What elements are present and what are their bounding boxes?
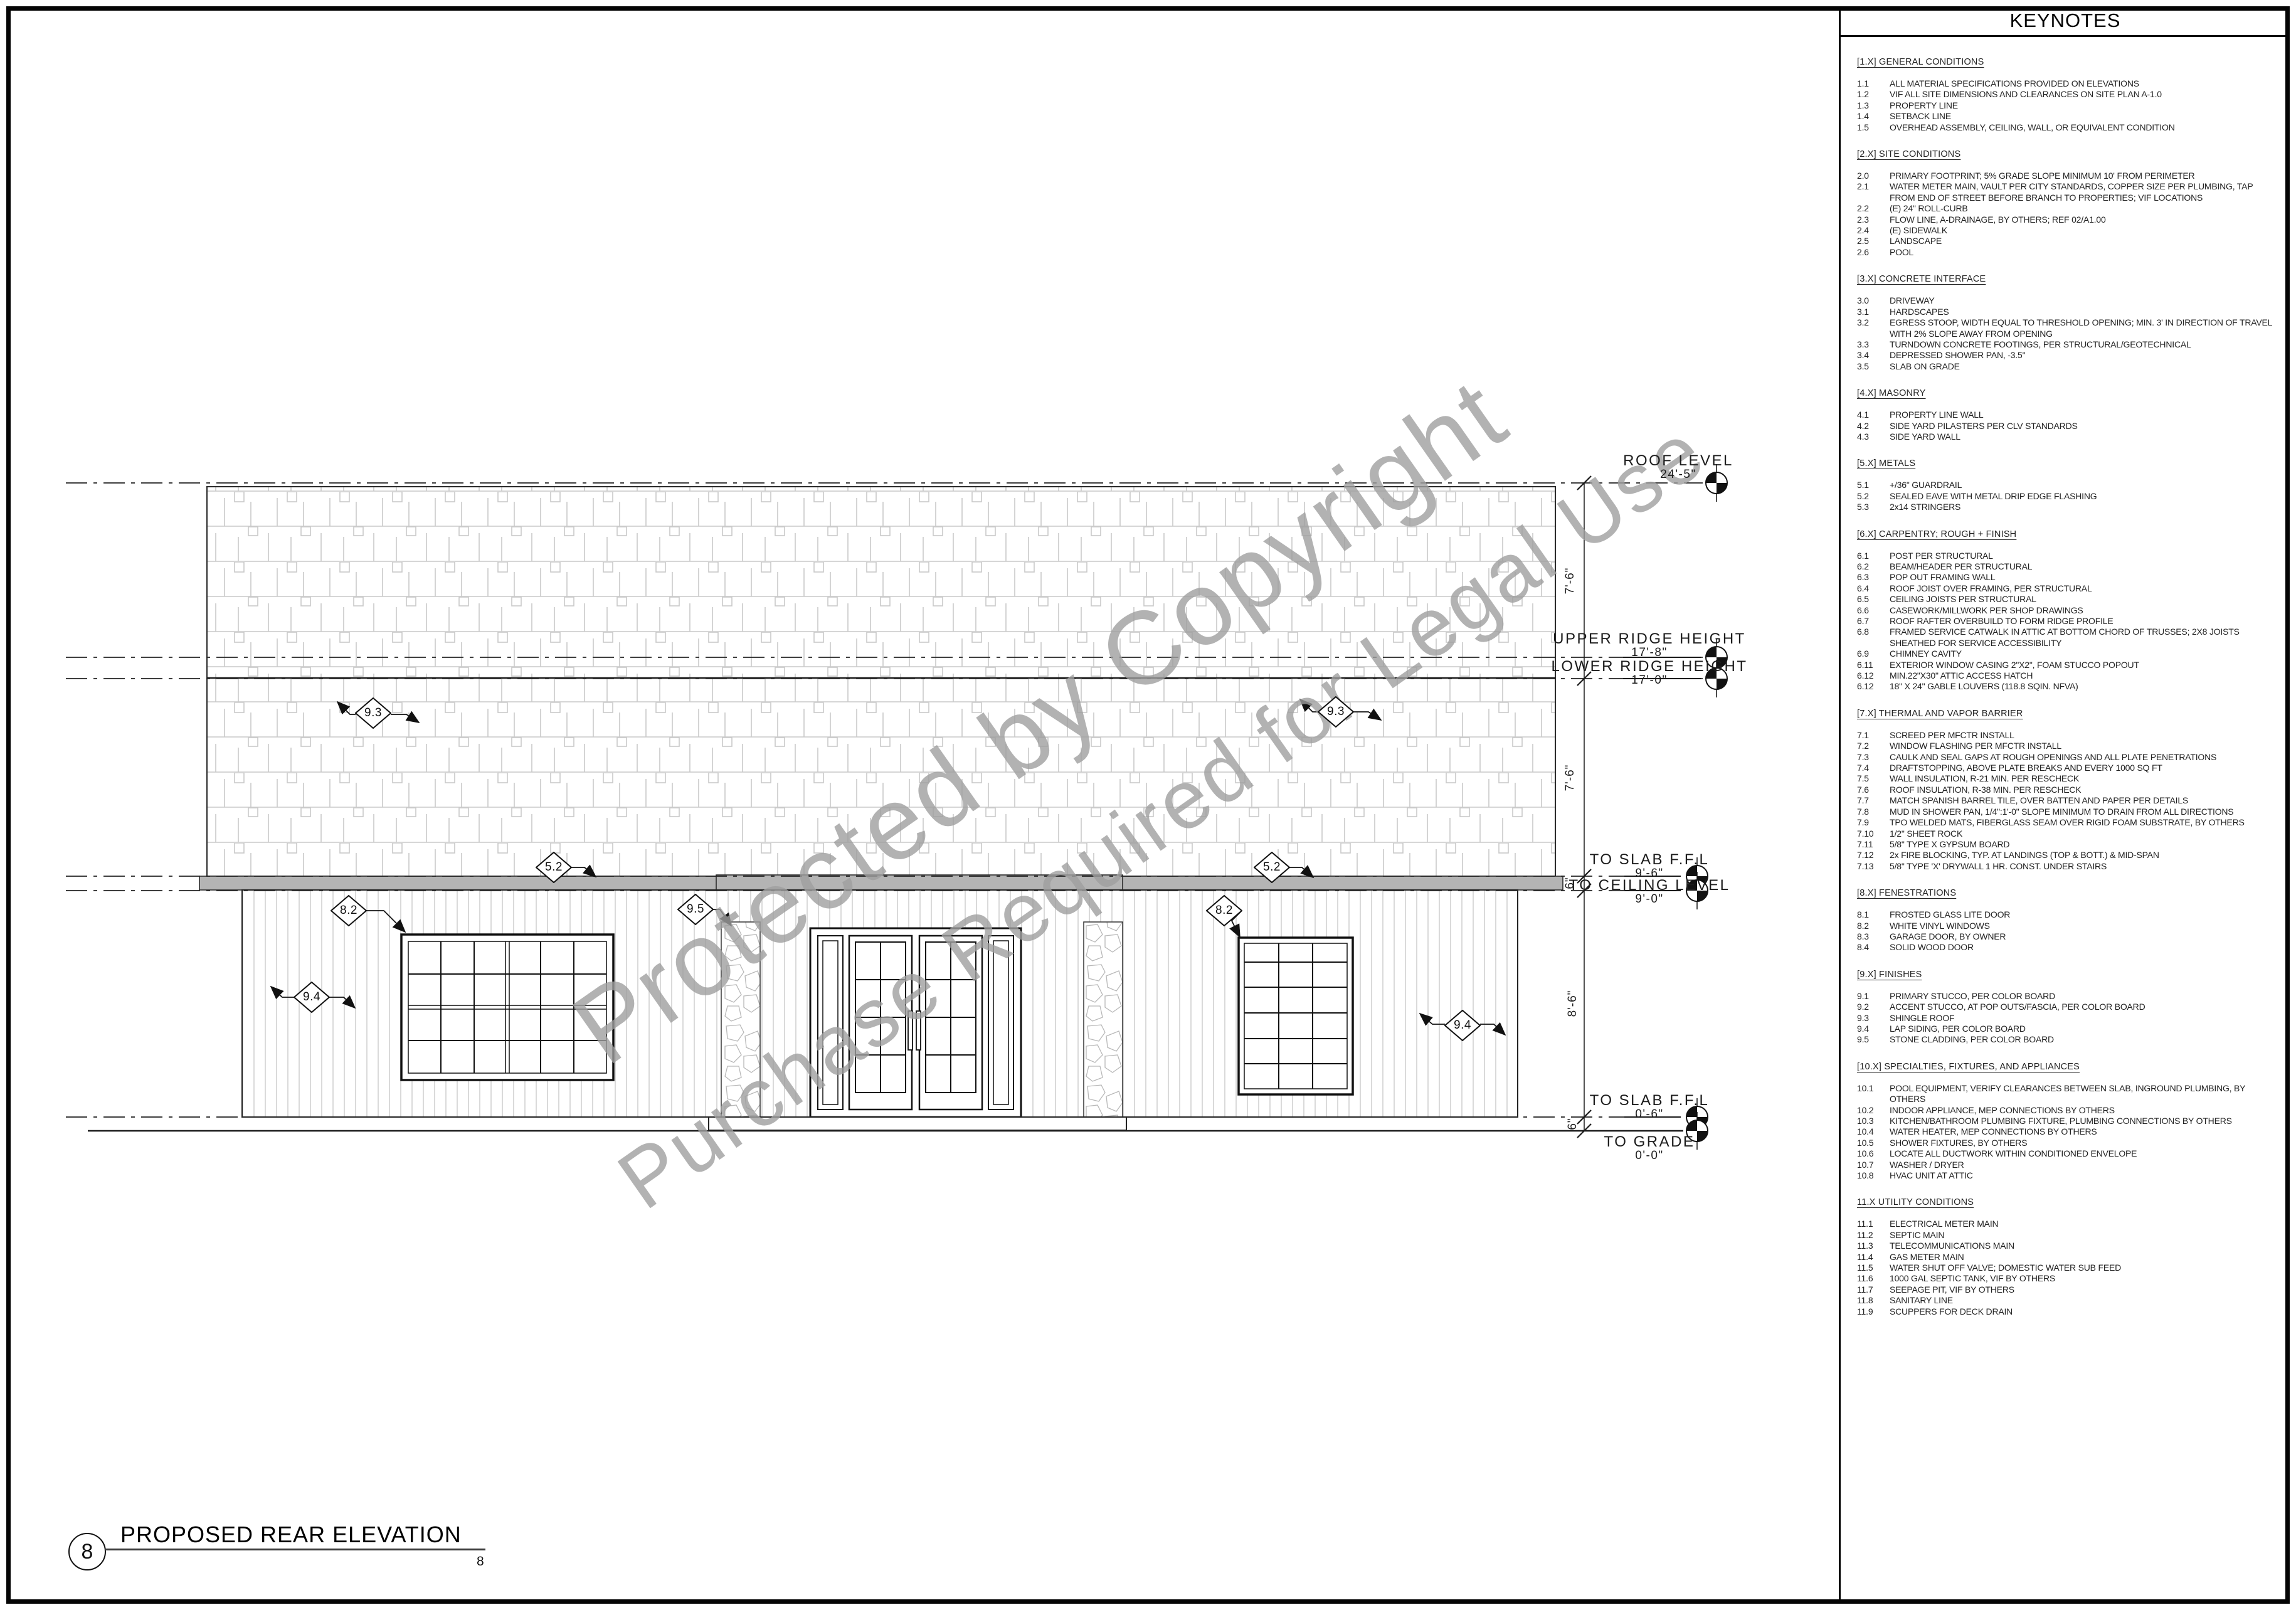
- keynote-text: SIDE YARD PILASTERS PER CLV STANDARDS: [1890, 421, 2280, 432]
- keynote-text: 1/2" SHEET ROCK: [1890, 829, 2280, 839]
- keynote-number: 2.6: [1857, 247, 1890, 258]
- keynote-item: 5.2SEALED EAVE WITH METAL DRIP EDGE FLAS…: [1857, 491, 2280, 502]
- keynote-text: SEEPAGE PIT, VIF BY OTHERS: [1890, 1284, 2280, 1295]
- keynote-number: 3.5: [1857, 361, 1890, 372]
- keynote-text: POOL EQUIPMENT, VERIFY CLEARANCES BETWEE…: [1890, 1083, 2280, 1105]
- keynote-section-heading: 11.X UTILITY CONDITIONS: [1857, 1197, 2280, 1207]
- keynote-text: SHINGLE ROOF: [1890, 1013, 2280, 1024]
- keynote-item: 9.3SHINGLE ROOF: [1857, 1013, 2280, 1024]
- keynote-text: (E) SIDEWALK: [1890, 225, 2280, 236]
- keynote-number: 11.6: [1857, 1273, 1890, 1284]
- level-name: UPPER RIDGE HEIGHT: [1549, 631, 1750, 647]
- keynote-number: 6.12: [1857, 670, 1890, 681]
- keynote-number: 9.5: [1857, 1034, 1890, 1045]
- keynote-item: 6.4ROOF JOIST OVER FRAMING, PER STRUCTUR…: [1857, 583, 2280, 594]
- keynote-item: 10.8HVAC UNIT AT ATTIC: [1857, 1170, 2280, 1181]
- keynote-item: 7.3CAULK AND SEAL GAPS AT ROUGH OPENINGS…: [1857, 752, 2280, 763]
- keynote-marker: 8.2: [1206, 895, 1242, 926]
- keynote-marker: 5.2: [1254, 852, 1290, 883]
- keynote-text: TELECOMMUNICATIONS MAIN: [1890, 1241, 2280, 1251]
- keynotes-title: KEYNOTES: [1841, 6, 2290, 37]
- keynote-number: 8.4: [1857, 942, 1890, 953]
- keynote-item: 6.11EXTERIOR WINDOW CASING 2"X2", FOAM S…: [1857, 660, 2280, 670]
- keynote-item: 7.1SCREED PER MFCTR INSTALL: [1857, 730, 2280, 741]
- drawing-number: 8: [82, 1540, 93, 1564]
- keynote-item: 10.7WASHER / DRYER: [1857, 1160, 2280, 1170]
- keynote-number: 6.6: [1857, 605, 1890, 616]
- keynote-item: 2.2(E) 24" ROLL-CURB: [1857, 203, 2280, 214]
- keynote-number: 7.12: [1857, 850, 1890, 861]
- keynote-text: DRIVEWAY: [1890, 295, 2280, 306]
- keynote-item: 8.3GARAGE DOOR, BY OWNER: [1857, 931, 2280, 942]
- keynote-item: 5.1+/36" GUARDRAIL: [1857, 480, 2280, 490]
- keynote-number: 10.8: [1857, 1170, 1890, 1181]
- keynote-number: 7.4: [1857, 763, 1890, 773]
- keynote-section: [3.X] CONCRETE INTERFACE3.0DRIVEWAY3.1HA…: [1857, 274, 2280, 372]
- keynote-section-heading: [4.X] MASONRY: [1857, 388, 2280, 398]
- level-label-roof: ROOF LEVEL 24'-5": [1578, 453, 1779, 480]
- keynote-item: 2.6POOL: [1857, 247, 2280, 258]
- keynote-text: ROOF JOIST OVER FRAMING, PER STRUCTURAL: [1890, 583, 2280, 594]
- drawing-sub-number: 8: [477, 1554, 484, 1569]
- keynote-text: DEPRESSED SHOWER PAN, -3.5": [1890, 350, 2280, 361]
- keynote-item: 11.5WATER SHUT OFF VALVE; DOMESTIC WATER…: [1857, 1263, 2280, 1273]
- level-label-upper-ridge: UPPER RIDGE HEIGHT 17'-8": [1549, 631, 1750, 659]
- keynote-number: 1.2: [1857, 89, 1890, 100]
- keynote-number: 6.5: [1857, 594, 1890, 605]
- keynote-number: 6.11: [1857, 660, 1890, 670]
- keynote-text: LOCATE ALL DUCTWORK WITHIN CONDITIONED E…: [1890, 1148, 2280, 1159]
- keynote-item: 7.6ROOF INSULATION, R-38 MIN. PER RESCHE…: [1857, 785, 2280, 795]
- keynote-item: 10.4WATER HEATER, MEP CONNECTIONS BY OTH…: [1857, 1126, 2280, 1137]
- keynote-number: 11.3: [1857, 1241, 1890, 1251]
- keynote-section-heading: [9.X] FINISHES: [1857, 970, 2280, 980]
- keynote-item: 1.1ALL MATERIAL SPECIFICATIONS PROVIDED …: [1857, 78, 2280, 89]
- keynote-text: LAP SIDING, PER COLOR BOARD: [1890, 1024, 2280, 1034]
- keynote-number: 9.3: [1857, 1013, 1890, 1024]
- keynote-text: EGRESS STOOP, WIDTH EQUAL TO THRESHOLD O…: [1890, 317, 2280, 339]
- keynote-item: 6.5CEILING JOISTS PER STRUCTURAL: [1857, 594, 2280, 605]
- keynote-number: 10.7: [1857, 1160, 1890, 1170]
- keynote-text: SHOWER FIXTURES, BY OTHERS: [1890, 1138, 2280, 1148]
- keynote-number: 8.2: [1857, 921, 1890, 931]
- keynote-number: 2.5: [1857, 236, 1890, 246]
- keynote-item: 4.1PROPERTY LINE WALL: [1857, 410, 2280, 420]
- keynote-text: POOL: [1890, 247, 2280, 258]
- keynote-text: PROPERTY LINE: [1890, 100, 2280, 111]
- keynote-item: 11.3TELECOMMUNICATIONS MAIN: [1857, 1241, 2280, 1251]
- keynote-number: 5.1: [1857, 480, 1890, 490]
- keynote-text: WATER HEATER, MEP CONNECTIONS BY OTHERS: [1890, 1126, 2280, 1137]
- keynote-number: 11.5: [1857, 1263, 1890, 1273]
- keynote-item: 1.4SETBACK LINE: [1857, 111, 2280, 122]
- keynote-item: 7.115/8" TYPE X GYPSUM BOARD: [1857, 839, 2280, 850]
- keynote-text: SEPTIC MAIN: [1890, 1230, 2280, 1241]
- keynote-text: FRAMED SERVICE CATWALK IN ATTIC AT BOTTO…: [1890, 627, 2280, 649]
- keynote-text: OVERHEAD ASSEMBLY, CEILING, WALL, OR EQU…: [1890, 122, 2280, 133]
- keynote-number: 7.6: [1857, 785, 1890, 795]
- keynote-section: [4.X] MASONRY4.1PROPERTY LINE WALL4.2SID…: [1857, 388, 2280, 442]
- keynote-item: 10.5SHOWER FIXTURES, BY OTHERS: [1857, 1138, 2280, 1148]
- keynote-item: 7.7MATCH SPANISH BARREL TILE, OVER BATTE…: [1857, 795, 2280, 806]
- keynote-text: +/36" GUARDRAIL: [1890, 480, 2280, 490]
- keynote-item: 1.2VIF ALL SITE DIMENSIONS AND CLEARANCE…: [1857, 89, 2280, 100]
- keynote-item: 6.1POST PER STRUCTURAL: [1857, 551, 2280, 561]
- keynote-item: 3.4DEPRESSED SHOWER PAN, -3.5": [1857, 350, 2280, 361]
- keynote-item: 7.9TPO WELDED MATS, FIBERGLASS SEAM OVER…: [1857, 817, 2280, 828]
- keynote-number: 6.8: [1857, 627, 1890, 649]
- keynote-number: 10.3: [1857, 1116, 1890, 1126]
- keynote-number: 9.2: [1857, 1002, 1890, 1012]
- keynote-marker: 9.4: [294, 982, 330, 1013]
- keynote-marker-label: 9.3: [1318, 696, 1354, 728]
- keynote-item: 8.4SOLID WOOD DOOR: [1857, 942, 2280, 953]
- keynote-item: 6.8FRAMED SERVICE CATWALK IN ATTIC AT BO…: [1857, 627, 2280, 649]
- keynote-number: 7.1: [1857, 730, 1890, 741]
- title-underline: [105, 1549, 485, 1550]
- keynote-text: KITCHEN/BATHROOM PLUMBING FIXTURE, PLUMB…: [1890, 1116, 2280, 1126]
- keynote-item: 6.2BEAM/HEADER PER STRUCTURAL: [1857, 561, 2280, 572]
- keynotes-panel: KEYNOTES [1.X] GENERAL CONDITIONS1.1ALL …: [1839, 6, 2290, 1604]
- keynote-number: 7.8: [1857, 807, 1890, 817]
- dimension-label: 6": [1563, 877, 1577, 889]
- keynote-item: 3.1HARDSCAPES: [1857, 307, 2280, 317]
- keynote-item: 11.61000 GAL SEPTIC TANK, VIF BY OTHERS: [1857, 1273, 2280, 1284]
- keynote-text: (E) 24" ROLL-CURB: [1890, 203, 2280, 214]
- keynote-number: 4.1: [1857, 410, 1890, 420]
- keynote-text: SETBACK LINE: [1890, 111, 2280, 122]
- keynote-item: 6.9CHIMNEY CAVITY: [1857, 649, 2280, 659]
- keynote-item: 10.2INDOOR APPLIANCE, MEP CONNECTIONS BY…: [1857, 1105, 2280, 1116]
- keynote-number: 11.2: [1857, 1230, 1890, 1241]
- keynote-text: STONE CLADDING, PER COLOR BOARD: [1890, 1034, 2280, 1045]
- keynote-item: 2.0PRIMARY FOOTPRINT; 5% GRADE SLOPE MIN…: [1857, 171, 2280, 181]
- dimension-label: 8'-6": [1566, 990, 1580, 1017]
- keynote-section-heading: [1.X] GENERAL CONDITIONS: [1857, 57, 2280, 67]
- keynote-text: FROSTED GLASS LITE DOOR: [1890, 909, 2280, 920]
- keynote-item: 7.4DRAFTSTOPPING, ABOVE PLATE BREAKS AND…: [1857, 763, 2280, 773]
- keynote-number: 7.10: [1857, 829, 1890, 839]
- keynote-text: WASHER / DRYER: [1890, 1160, 2280, 1170]
- keynote-text: ELECTRICAL METER MAIN: [1890, 1219, 2280, 1229]
- keynote-item: 1.5OVERHEAD ASSEMBLY, CEILING, WALL, OR …: [1857, 122, 2280, 133]
- keynote-item: 7.135/8" TYPE 'X' DRYWALL 1 HR. CONST. U…: [1857, 861, 2280, 872]
- keynote-text: GARAGE DOOR, BY OWNER: [1890, 931, 2280, 942]
- sheet: Protected by Copyright Purchase Required…: [0, 0, 2296, 1610]
- keynote-number: 7.5: [1857, 773, 1890, 784]
- keynote-number: 1.1: [1857, 78, 1890, 89]
- keynote-number: 5.2: [1857, 491, 1890, 502]
- keynote-number: 6.7: [1857, 616, 1890, 627]
- keynote-text: TURNDOWN CONCRETE FOOTINGS, PER STRUCTUR…: [1890, 339, 2280, 350]
- keynote-number: 3.3: [1857, 339, 1890, 350]
- keynote-item: 1.3PROPERTY LINE: [1857, 100, 2280, 111]
- keynote-text: CEILING JOISTS PER STRUCTURAL: [1890, 594, 2280, 605]
- keynotes-list: [1.X] GENERAL CONDITIONS1.1ALL MATERIAL …: [1841, 37, 2290, 1317]
- keynote-number: 4.3: [1857, 432, 1890, 442]
- drawing-title: PROPOSED REAR ELEVATION: [120, 1522, 462, 1548]
- dimension-label: 7'-6": [1563, 765, 1577, 792]
- keynote-number: 2.0: [1857, 171, 1890, 181]
- keynote-number: 9.4: [1857, 1024, 1890, 1034]
- keynote-marker-label: 9.4: [294, 982, 330, 1013]
- keynote-item: 7.2WINDOW FLASHING PER MFCTR INSTALL: [1857, 741, 2280, 751]
- keynote-text: DRAFTSTOPPING, ABOVE PLATE BREAKS AND EV…: [1890, 763, 2280, 773]
- keynote-number: 10.1: [1857, 1083, 1890, 1105]
- keynote-number: 10.6: [1857, 1148, 1890, 1159]
- keynote-item: 11.8SANITARY LINE: [1857, 1295, 2280, 1306]
- keynote-text: HVAC UNIT AT ATTIC: [1890, 1170, 2280, 1181]
- dimension-label: 7'-6": [1563, 568, 1577, 595]
- dimension-label: 6": [1566, 1118, 1580, 1130]
- keynote-number: 11.1: [1857, 1219, 1890, 1229]
- keynote-section-heading: [6.X] CARPENTRY; ROUGH + FINISH: [1857, 529, 2280, 539]
- level-label-lower-ridge: LOWER RIDGE HEIGHT 17'-0": [1549, 659, 1750, 686]
- drawing-number-bubble: 8: [68, 1533, 106, 1570]
- level-label-slab-lower: TO SLAB F.F.L 0'-6": [1549, 1093, 1750, 1120]
- keynote-text: SANITARY LINE: [1890, 1295, 2280, 1306]
- keynote-item: 7.101/2" SHEET ROCK: [1857, 829, 2280, 839]
- keynote-number: 7.7: [1857, 795, 1890, 806]
- keynote-number: 2.1: [1857, 181, 1890, 203]
- keynote-number: 7.9: [1857, 817, 1890, 828]
- keynote-number: 1.5: [1857, 122, 1890, 133]
- keynote-number: 3.4: [1857, 350, 1890, 361]
- keynote-number: 8.3: [1857, 931, 1890, 942]
- keynote-number: 10.5: [1857, 1138, 1890, 1148]
- keynote-item: 10.6LOCATE ALL DUCTWORK WITHIN CONDITION…: [1857, 1148, 2280, 1159]
- keynote-number: 11.9: [1857, 1306, 1890, 1317]
- keynote-text: TPO WELDED MATS, FIBERGLASS SEAM OVER RI…: [1890, 817, 2280, 828]
- keynote-number: 2.3: [1857, 214, 1890, 225]
- level-name: TO SLAB F.F.L: [1549, 1093, 1750, 1108]
- keynote-item: 6.3POP OUT FRAMING WALL: [1857, 572, 2280, 583]
- keynote-number: 6.1: [1857, 551, 1890, 561]
- keynote-number: 10.2: [1857, 1105, 1890, 1116]
- keynote-text: EXTERIOR WINDOW CASING 2"X2", FOAM STUCC…: [1890, 660, 2280, 670]
- keynote-number: 9.1: [1857, 991, 1890, 1002]
- keynote-section: [2.X] SITE CONDITIONS2.0PRIMARY FOOTPRIN…: [1857, 149, 2280, 258]
- keynote-item: 5.32x14 STRINGERS: [1857, 502, 2280, 512]
- keynote-item: 2.1WATER METER MAIN, VAULT PER CITY STAN…: [1857, 181, 2280, 203]
- keynote-text: 5/8" TYPE 'X' DRYWALL 1 HR. CONST. UNDER…: [1890, 861, 2280, 872]
- keynote-text: PRIMARY FOOTPRINT; 5% GRADE SLOPE MINIMU…: [1890, 171, 2280, 181]
- keynote-text: SCUPPERS FOR DECK DRAIN: [1890, 1306, 2280, 1317]
- keynote-text: LANDSCAPE: [1890, 236, 2280, 246]
- level-label-grade: TO GRADE 0'-0": [1549, 1134, 1750, 1162]
- keynote-text: ROOF RAFTER OVERBUILD TO FORM RIDGE PROF…: [1890, 616, 2280, 627]
- keynote-number: 2.4: [1857, 225, 1890, 236]
- keynote-marker: 5.2: [536, 852, 572, 883]
- keynote-section: [6.X] CARPENTRY; ROUGH + FINISH6.1POST P…: [1857, 529, 2280, 692]
- keynote-section-heading: [5.X] METALS: [1857, 458, 2280, 469]
- keynote-section-heading: [2.X] SITE CONDITIONS: [1857, 149, 2280, 159]
- keynote-marker-label: 9.3: [355, 697, 391, 729]
- keynote-item: 11.9SCUPPERS FOR DECK DRAIN: [1857, 1306, 2280, 1317]
- keynote-marker-label: 5.2: [1254, 852, 1290, 883]
- level-name: LOWER RIDGE HEIGHT: [1549, 659, 1750, 674]
- keynote-text: 18" X 24" GABLE LOUVERS (118.8 SQIN. NFV…: [1890, 681, 2280, 692]
- keynote-item: 6.1218" X 24" GABLE LOUVERS (118.8 SQIN.…: [1857, 681, 2280, 692]
- keynote-marker-label: 8.2: [331, 895, 367, 926]
- keynote-section: [5.X] METALS5.1+/36" GUARDRAIL5.2SEALED …: [1857, 458, 2280, 512]
- keynote-text: FLOW LINE, A-DRAINAGE, BY OTHERS; REF 02…: [1890, 214, 2280, 225]
- keynote-number: 6.12: [1857, 681, 1890, 692]
- keynote-text: 2x14 STRINGERS: [1890, 502, 2280, 512]
- keynote-item: 8.2WHITE VINYL WINDOWS: [1857, 921, 2280, 931]
- keynote-item: 8.1FROSTED GLASS LITE DOOR: [1857, 909, 2280, 920]
- keynote-item: 2.3FLOW LINE, A-DRAINAGE, BY OTHERS; REF…: [1857, 214, 2280, 225]
- keynote-number: 10.4: [1857, 1126, 1890, 1137]
- keynote-section-heading: [10.X] SPECIALTIES, FIXTURES, AND APPLIA…: [1857, 1062, 2280, 1072]
- level-elevation: 24'-5": [1578, 469, 1779, 480]
- keynote-marker: 9.3: [355, 697, 391, 729]
- keynote-marker-label: 9.4: [1444, 1010, 1481, 1041]
- keynote-section: [1.X] GENERAL CONDITIONS1.1ALL MATERIAL …: [1857, 57, 2280, 133]
- keynote-number: 6.3: [1857, 572, 1890, 583]
- keynote-number: 1.3: [1857, 100, 1890, 111]
- keynote-section: [9.X] FINISHES9.1PRIMARY STUCCO, PER COL…: [1857, 970, 2280, 1046]
- keynote-number: 2.2: [1857, 203, 1890, 214]
- keynote-number: 6.2: [1857, 561, 1890, 572]
- keynote-number: 8.1: [1857, 909, 1890, 920]
- keynote-section-heading: [3.X] CONCRETE INTERFACE: [1857, 274, 2280, 284]
- keynote-text: ROOF INSULATION, R-38 MIN. PER RESCHECK: [1890, 785, 2280, 795]
- keynote-text: CAULK AND SEAL GAPS AT ROUGH OPENINGS AN…: [1890, 752, 2280, 763]
- keynote-text: 2x FIRE BLOCKING, TYP. AT LANDINGS (TOP …: [1890, 850, 2280, 861]
- keynote-item: 7.5WALL INSULATION, R-21 MIN. PER RESCHE…: [1857, 773, 2280, 784]
- level-name: TO GRADE: [1549, 1134, 1750, 1150]
- keynote-number: 7.13: [1857, 861, 1890, 872]
- level-elevation: 9'-0": [1549, 893, 1750, 905]
- keynote-text: WHITE VINYL WINDOWS: [1890, 921, 2280, 931]
- keynote-marker: 8.2: [331, 895, 367, 926]
- keynote-number: 6.4: [1857, 583, 1890, 594]
- level-elevation: 0'-0": [1549, 1150, 1750, 1162]
- keynote-text: SEALED EAVE WITH METAL DRIP EDGE FLASHIN…: [1890, 491, 2280, 502]
- keynote-item: 7.8MUD IN SHOWER PAN, 1/4":1'-0" SLOPE M…: [1857, 807, 2280, 817]
- keynote-item: 11.4GAS METER MAIN: [1857, 1252, 2280, 1263]
- keynote-section: [10.X] SPECIALTIES, FIXTURES, AND APPLIA…: [1857, 1062, 2280, 1182]
- keynote-text: CASEWORK/MILLWORK PER SHOP DRAWINGS: [1890, 605, 2280, 616]
- keynote-text: WINDOW FLASHING PER MFCTR INSTALL: [1890, 741, 2280, 751]
- keynote-text: SLAB ON GRADE: [1890, 361, 2280, 372]
- keynote-text: 1000 GAL SEPTIC TANK, VIF BY OTHERS: [1890, 1273, 2280, 1284]
- keynote-item: 11.7SEEPAGE PIT, VIF BY OTHERS: [1857, 1284, 2280, 1295]
- keynote-item: 4.2SIDE YARD PILASTERS PER CLV STANDARDS: [1857, 421, 2280, 432]
- keynote-number: 11.7: [1857, 1284, 1890, 1295]
- keynote-number: 7.2: [1857, 741, 1890, 751]
- keynote-number: 11.8: [1857, 1295, 1890, 1306]
- keynote-number: 7.3: [1857, 752, 1890, 763]
- keynote-text: PRIMARY STUCCO, PER COLOR BOARD: [1890, 991, 2280, 1002]
- level-name: TO CEILING LEVEL: [1549, 877, 1750, 893]
- keynote-section: [8.X] FENESTRATIONS8.1FROSTED GLASS LITE…: [1857, 888, 2280, 953]
- keynote-marker-label: 9.5: [677, 894, 714, 925]
- keynote-item: 6.7ROOF RAFTER OVERBUILD TO FORM RIDGE P…: [1857, 616, 2280, 627]
- keynote-text: BEAM/HEADER PER STRUCTURAL: [1890, 561, 2280, 572]
- keynote-number: 5.3: [1857, 502, 1890, 512]
- keynote-section-heading: [8.X] FENESTRATIONS: [1857, 888, 2280, 898]
- keynote-text: 5/8" TYPE X GYPSUM BOARD: [1890, 839, 2280, 850]
- keynote-item: 4.3SIDE YARD WALL: [1857, 432, 2280, 442]
- keynote-text: PROPERTY LINE WALL: [1890, 410, 2280, 420]
- keynote-marker-label: 5.2: [536, 852, 572, 883]
- keynote-item: 6.6CASEWORK/MILLWORK PER SHOP DRAWINGS: [1857, 605, 2280, 616]
- keynote-text: CHIMNEY CAVITY: [1890, 649, 2280, 659]
- keynote-text: INDOOR APPLIANCE, MEP CONNECTIONS BY OTH…: [1890, 1105, 2280, 1116]
- keynote-text: HARDSCAPES: [1890, 307, 2280, 317]
- keynote-item: 9.4LAP SIDING, PER COLOR BOARD: [1857, 1024, 2280, 1034]
- keynote-marker-label: 8.2: [1206, 895, 1242, 926]
- keynote-text: ALL MATERIAL SPECIFICATIONS PROVIDED ON …: [1890, 78, 2280, 89]
- keynote-number: 4.2: [1857, 421, 1890, 432]
- keynote-number: 3.0: [1857, 295, 1890, 306]
- keynote-item: 10.3KITCHEN/BATHROOM PLUMBING FIXTURE, P…: [1857, 1116, 2280, 1126]
- keynote-section: 11.X UTILITY CONDITIONS11.1ELECTRICAL ME…: [1857, 1197, 2280, 1317]
- keynote-text: WATER SHUT OFF VALVE; DOMESTIC WATER SUB…: [1890, 1263, 2280, 1273]
- keynote-item: 9.2ACCENT STUCCO, AT POP OUTS/FASCIA, PE…: [1857, 1002, 2280, 1012]
- keynote-text: WATER METER MAIN, VAULT PER CITY STANDAR…: [1890, 181, 2280, 203]
- keynote-text: GAS METER MAIN: [1890, 1252, 2280, 1263]
- keynote-item: 2.5LANDSCAPE: [1857, 236, 2280, 246]
- keynote-number: 3.1: [1857, 307, 1890, 317]
- keynote-text: ACCENT STUCCO, AT POP OUTS/FASCIA, PER C…: [1890, 1002, 2280, 1012]
- keynote-text: SCREED PER MFCTR INSTALL: [1890, 730, 2280, 741]
- level-name: ROOF LEVEL: [1578, 453, 1779, 469]
- keynote-number: 7.11: [1857, 839, 1890, 850]
- keynote-item: 3.5SLAB ON GRADE: [1857, 361, 2280, 372]
- keynote-item: 3.2EGRESS STOOP, WIDTH EQUAL TO THRESHOL…: [1857, 317, 2280, 339]
- level-name: TO SLAB F.F.L: [1549, 852, 1750, 867]
- keynote-text: POST PER STRUCTURAL: [1890, 551, 2280, 561]
- keynote-text: MATCH SPANISH BARREL TILE, OVER BATTEN A…: [1890, 795, 2280, 806]
- keynote-item: 3.0DRIVEWAY: [1857, 295, 2280, 306]
- keynote-section: [7.X] THERMAL AND VAPOR BARRIER7.1SCREED…: [1857, 709, 2280, 872]
- keynote-text: MUD IN SHOWER PAN, 1/4":1'-0" SLOPE MINI…: [1890, 807, 2280, 817]
- keynote-item: 9.1PRIMARY STUCCO, PER COLOR BOARD: [1857, 991, 2280, 1002]
- keynote-text: MIN.22"X30" ATTIC ACCESS HATCH: [1890, 670, 2280, 681]
- keynote-text: SOLID WOOD DOOR: [1890, 942, 2280, 953]
- keynote-text: POP OUT FRAMING WALL: [1890, 572, 2280, 583]
- keynote-number: 1.4: [1857, 111, 1890, 122]
- keynote-item: 11.2SEPTIC MAIN: [1857, 1230, 2280, 1241]
- level-elevation: 17'-8": [1549, 647, 1750, 659]
- keynote-item: 2.4(E) SIDEWALK: [1857, 225, 2280, 236]
- keynote-item: 6.12MIN.22"X30" ATTIC ACCESS HATCH: [1857, 670, 2280, 681]
- keynote-marker: 9.4: [1444, 1010, 1481, 1041]
- keynote-number: 11.4: [1857, 1252, 1890, 1263]
- keynote-text: VIF ALL SITE DIMENSIONS AND CLEARANCES O…: [1890, 89, 2280, 100]
- keynote-item: 9.5STONE CLADDING, PER COLOR BOARD: [1857, 1034, 2280, 1045]
- level-label-ceiling: TO CEILING LEVEL 9'-0": [1549, 877, 1750, 905]
- keynote-item: 10.1POOL EQUIPMENT, VERIFY CLEARANCES BE…: [1857, 1083, 2280, 1105]
- level-label-slab-upper: TO SLAB F.F.L 9'-6": [1549, 852, 1750, 879]
- keynote-item: 11.1ELECTRICAL METER MAIN: [1857, 1219, 2280, 1229]
- keynote-item: 7.122x FIRE BLOCKING, TYP. AT LANDINGS (…: [1857, 850, 2280, 861]
- keynote-section-heading: [7.X] THERMAL AND VAPOR BARRIER: [1857, 709, 2280, 719]
- keynote-text: SIDE YARD WALL: [1890, 432, 2280, 442]
- level-elevation: 17'-0": [1549, 674, 1750, 686]
- keynote-marker: 9.3: [1318, 696, 1354, 728]
- keynote-text: WALL INSULATION, R-21 MIN. PER RESCHECK: [1890, 773, 2280, 784]
- keynote-marker: 9.5: [677, 894, 714, 925]
- keynote-item: 3.3TURNDOWN CONCRETE FOOTINGS, PER STRUC…: [1857, 339, 2280, 350]
- keynote-number: 6.9: [1857, 649, 1890, 659]
- keynote-number: 3.2: [1857, 317, 1890, 339]
